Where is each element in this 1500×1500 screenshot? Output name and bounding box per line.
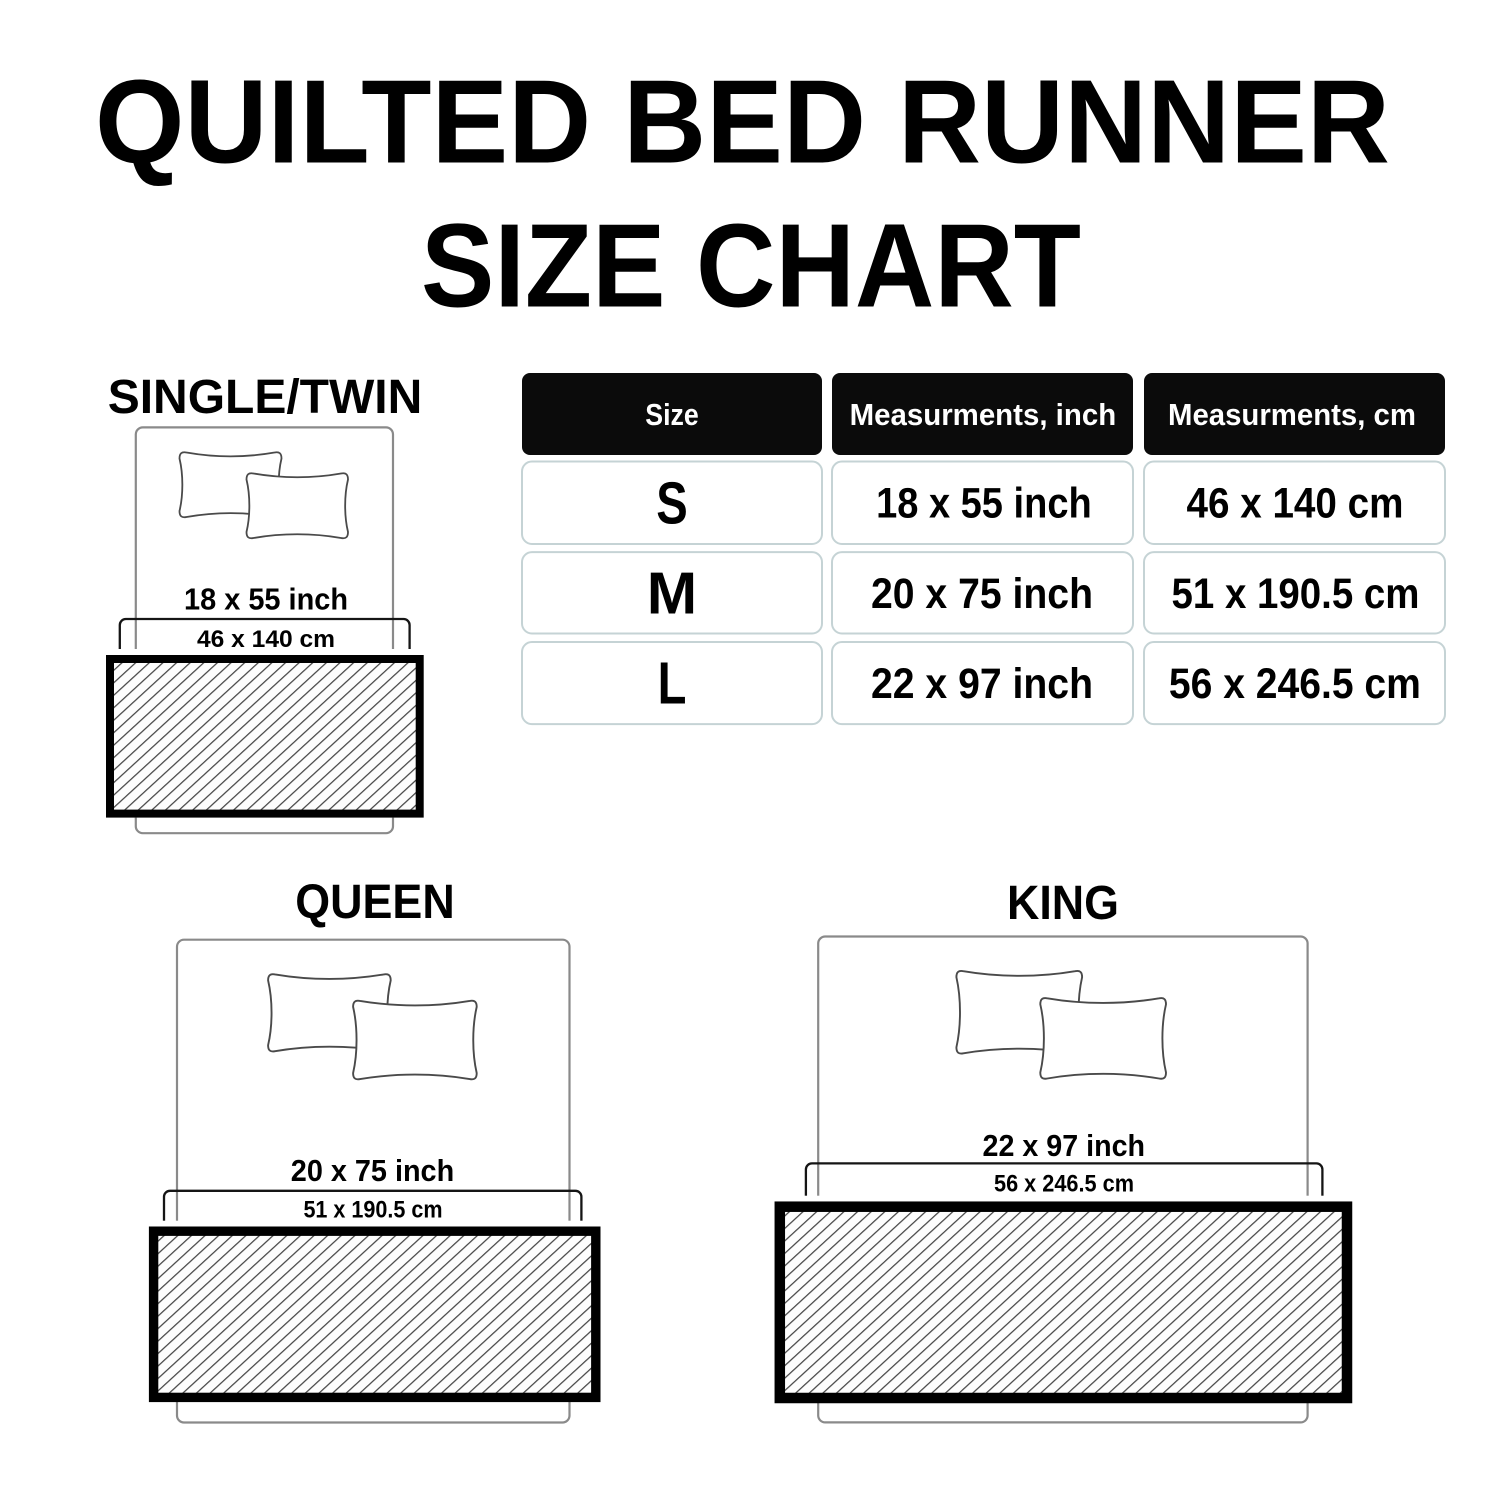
svg-text:51 x 190.5 cm: 51 x 190.5 cm bbox=[1172, 570, 1420, 618]
svg-text:S: S bbox=[656, 471, 688, 537]
svg-text:Measurments, cm: Measurments, cm bbox=[1168, 397, 1416, 432]
svg-text:20 x 75 inch: 20 x 75 inch bbox=[291, 1153, 454, 1188]
svg-text:22 x 97 inch: 22 x 97 inch bbox=[871, 660, 1093, 708]
svg-text:18 x 55 inch: 18 x 55 inch bbox=[184, 581, 348, 616]
svg-text:46 x 140 cm: 46 x 140 cm bbox=[1187, 480, 1404, 528]
svg-text:SIZE CHART: SIZE CHART bbox=[421, 200, 1081, 333]
svg-text:51 x 190.5 cm: 51 x 190.5 cm bbox=[303, 1197, 442, 1224]
svg-text:M: M bbox=[647, 561, 697, 627]
svg-text:Measurments, inch: Measurments, inch bbox=[850, 397, 1117, 432]
svg-text:56 x 246.5 cm: 56 x 246.5 cm bbox=[1169, 660, 1421, 708]
svg-text:18 x 55 inch: 18 x 55 inch bbox=[876, 480, 1092, 528]
svg-text:Size: Size bbox=[645, 397, 698, 432]
svg-text:SINGLE/TWIN: SINGLE/TWIN bbox=[108, 371, 423, 424]
svg-text:QUEEN: QUEEN bbox=[295, 876, 454, 929]
svg-text:L: L bbox=[658, 651, 687, 717]
svg-text:QUILTED BED RUNNER: QUILTED BED RUNNER bbox=[95, 56, 1390, 189]
svg-text:22 x 97 inch: 22 x 97 inch bbox=[983, 1128, 1146, 1163]
svg-text:20 x 75 inch: 20 x 75 inch bbox=[871, 570, 1093, 618]
svg-text:KING: KING bbox=[1007, 877, 1119, 930]
svg-text:56 x 246.5 cm: 56 x 246.5 cm bbox=[994, 1171, 1134, 1198]
